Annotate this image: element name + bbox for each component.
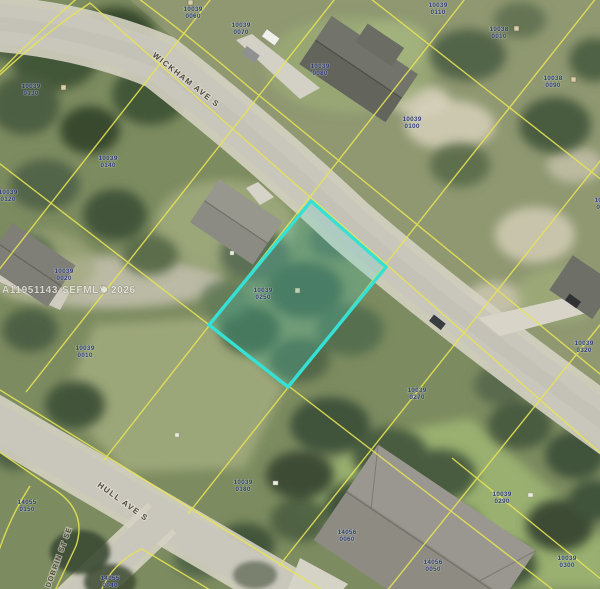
svg-text:10039: 10039 <box>75 345 94 352</box>
svg-text:10039: 10039 <box>183 6 202 13</box>
watermark: A11951143 SEFMLS 2026 <box>2 285 136 296</box>
svg-text:0180: 0180 <box>235 486 250 493</box>
svg-text:10039: 10039 <box>21 83 40 90</box>
svg-text:10038: 10038 <box>489 26 508 33</box>
parcel-label: 100390290 <box>492 491 511 505</box>
svg-text:10039: 10039 <box>492 491 511 498</box>
subject-parcel-label: 100390250 <box>253 287 272 301</box>
parcel-label: 100390070 <box>231 22 250 36</box>
parcel-label: 100390080 <box>310 63 329 77</box>
svg-text:0120: 0120 <box>0 196 15 203</box>
svg-text:10038: 10038 <box>543 75 562 82</box>
svg-text:0140: 0140 <box>100 162 115 169</box>
watermark-year: 2026 <box>111 285 136 296</box>
svg-text:0040: 0040 <box>102 582 117 589</box>
parcel-label: 100390020 <box>54 268 73 282</box>
parcel-label: 100380010 <box>489 26 508 40</box>
watermark-source: SEFMLS <box>62 285 106 296</box>
mls-logo-icon <box>100 286 107 293</box>
parcel-label: 100390130 <box>21 83 40 97</box>
svg-text:10039: 10039 <box>54 268 73 275</box>
svg-text:14055: 14055 <box>17 499 36 506</box>
parcel-label: 100390300 <box>557 555 576 569</box>
svg-text:0250: 0250 <box>255 294 270 301</box>
svg-text:0100: 0100 <box>596 204 600 211</box>
svg-text:0080: 0080 <box>312 70 327 77</box>
svg-text:0020: 0020 <box>56 275 71 282</box>
svg-text:14055: 14055 <box>100 575 119 582</box>
parcel-label: 100390120 <box>0 189 18 203</box>
svg-text:0270: 0270 <box>409 394 424 401</box>
svg-text:0300: 0300 <box>559 562 574 569</box>
svg-text:10039: 10039 <box>0 189 18 196</box>
svg-text:0150: 0150 <box>19 506 34 513</box>
svg-text:0100: 0100 <box>404 123 419 130</box>
parcel-label: 100380090 <box>543 75 562 89</box>
svg-text:0010: 0010 <box>77 352 92 359</box>
svg-text:10039: 10039 <box>310 63 329 70</box>
svg-text:0320: 0320 <box>576 347 591 354</box>
svg-text:10039: 10039 <box>98 155 117 162</box>
parcel-label: 100390270 <box>407 387 426 401</box>
watermark-listing-id: A11951143 <box>2 285 58 296</box>
svg-text:10039: 10039 <box>231 22 250 29</box>
svg-text:0290: 0290 <box>494 498 509 505</box>
svg-text:10039: 10039 <box>253 287 272 294</box>
svg-text:10039: 10039 <box>233 479 252 486</box>
parcel-label: 100390060 <box>183 6 202 20</box>
parcel-label: 140550040 <box>100 575 119 589</box>
svg-text:10039: 10039 <box>402 116 421 123</box>
parcel-label: 100390010 <box>75 345 94 359</box>
parcel-label: 100390110 <box>428 2 447 16</box>
parcel-label: 100390140 <box>98 155 117 169</box>
svg-text:0060: 0060 <box>185 13 200 20</box>
svg-text:14056: 14056 <box>337 529 356 536</box>
parcel-label: 100390180 <box>233 479 252 493</box>
svg-text:0090: 0090 <box>545 82 560 89</box>
svg-text:0050: 0050 <box>425 566 440 573</box>
svg-text:14056: 14056 <box>423 559 442 566</box>
svg-text:10039: 10039 <box>574 340 593 347</box>
parcel-label: 140550150 <box>17 499 36 513</box>
svg-text:0110: 0110 <box>431 9 446 16</box>
svg-text:0070: 0070 <box>233 29 248 36</box>
parcel-label: 140560060 <box>337 529 356 543</box>
svg-text:0060: 0060 <box>339 536 354 543</box>
svg-text:10039: 10039 <box>407 387 426 394</box>
svg-text:10038: 10038 <box>594 197 600 204</box>
satellite-map-canvas: 100390060 100390070 100390080 100390110 … <box>0 0 600 589</box>
parcel-label: 100390100 <box>402 116 421 130</box>
parcel-label: 140560050 <box>423 559 442 573</box>
svg-text:0010: 0010 <box>491 33 506 40</box>
svg-text:10039: 10039 <box>428 2 447 9</box>
parcel-label: 100390320 <box>574 340 593 354</box>
svg-text:10039: 10039 <box>557 555 576 562</box>
svg-text:0130: 0130 <box>23 90 38 97</box>
map-view[interactable]: 100390060 100390070 100390080 100390110 … <box>0 0 600 589</box>
